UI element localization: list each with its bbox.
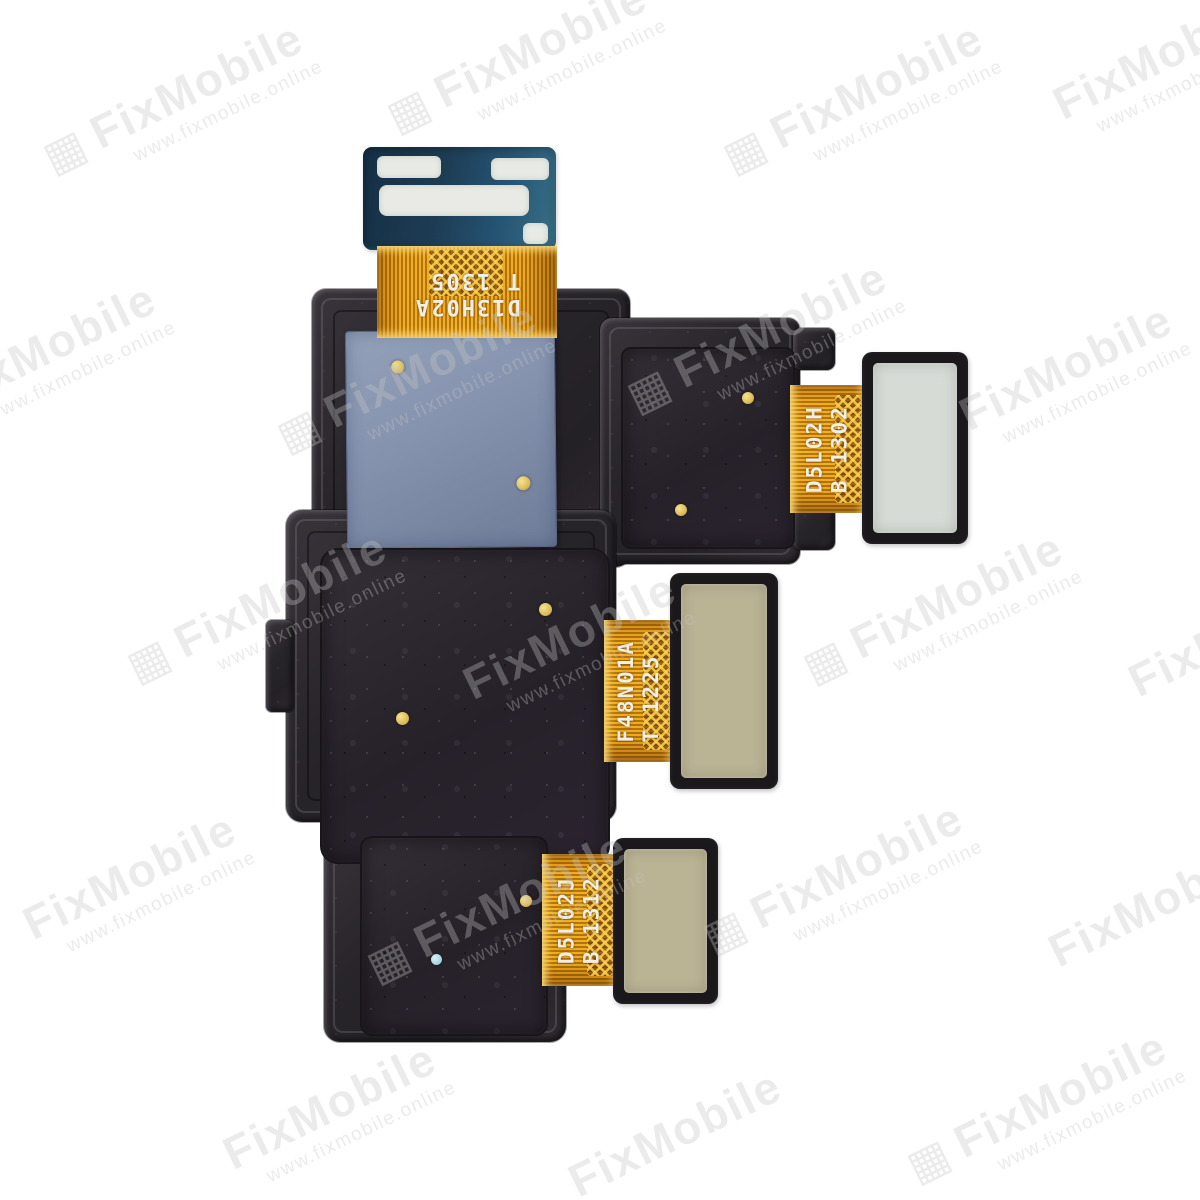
solder-dot bbox=[396, 712, 409, 725]
watermark-brand: FixMobile bbox=[1042, 832, 1200, 974]
watermark-url: www.fixmobile.online bbox=[1093, 27, 1200, 138]
connector-pad bbox=[379, 185, 529, 216]
watermark-url: www.fixmobile.online bbox=[130, 56, 327, 167]
solder-dot bbox=[539, 603, 552, 616]
watermark-brand: FixMobile bbox=[216, 1032, 449, 1177]
product-photo: D13H02AT 1305 D5L02HB 1302 F48N01AT 1225… bbox=[0, 0, 1200, 1200]
solder-dot bbox=[742, 392, 754, 404]
watermark: FixMobilewww.fixmobile.online bbox=[16, 802, 260, 970]
qr-logo-icon: ▦ bbox=[37, 123, 94, 181]
qr-logo-icon: ▦ bbox=[901, 1133, 958, 1191]
flex-connector-upper-right bbox=[862, 352, 968, 544]
barcode-pattern bbox=[169, 153, 176, 168]
flex-connector-middle-right bbox=[670, 573, 778, 789]
main-camera-module bbox=[320, 548, 610, 864]
watermark: ▦FixMobilewww.fixmobile.online bbox=[379, 0, 671, 162]
watermark-brand: FixMobile bbox=[83, 11, 316, 156]
watermark: ▦FixMobilewww.fixmobile.online bbox=[695, 791, 995, 999]
watermark: FixMobilewww.fixmobile.online bbox=[1046, 0, 1200, 150]
qr-logo-icon: ▦ bbox=[381, 83, 438, 141]
flex-cable-upper-right: D5L02HB 1302 bbox=[790, 385, 866, 513]
qr-logo-icon: ▦ bbox=[797, 633, 854, 691]
watermark-url: www.fixmobile.online bbox=[994, 1065, 1191, 1176]
flex-connector-bottom bbox=[613, 838, 718, 1004]
watermark: FixMobile bbox=[1122, 562, 1200, 704]
solder-dot bbox=[391, 360, 404, 373]
watermark: ▦FixMobilewww.fixmobile.online bbox=[715, 11, 1015, 219]
flex-marking-upper-right: D5L02HB 1302 bbox=[790, 385, 866, 513]
barcode-pattern bbox=[929, 663, 936, 678]
watermark-url: www.fixmobile.online bbox=[263, 1077, 460, 1188]
flex-marking-text: D5L02HB 1302 bbox=[803, 405, 853, 493]
watermark-url: www.fixmobile.online bbox=[63, 847, 260, 958]
connector-pad bbox=[491, 158, 549, 180]
watermark-url: www.fixmobile.online bbox=[999, 338, 1196, 449]
watermark: FixMobilewww.fixmobile.online bbox=[0, 272, 180, 440]
solder-dot bbox=[520, 895, 532, 907]
flex-cable-top: D13H02AT 1305 bbox=[377, 246, 557, 338]
watermark-url: www.fixmobile.online bbox=[790, 836, 987, 947]
watermark-brand: FixMobile bbox=[952, 293, 1185, 438]
qr-logo-icon: ▦ bbox=[717, 123, 774, 181]
watermark-brand: FixMobile bbox=[1122, 562, 1200, 704]
watermark-brand: FixMobile bbox=[1046, 0, 1200, 127]
watermark-url: www.fixmobile.online bbox=[890, 566, 1087, 677]
watermark: FixMobilewww.fixmobile.online bbox=[216, 1032, 460, 1200]
watermark-brand: FixMobile bbox=[0, 272, 169, 417]
housing-tab bbox=[793, 328, 835, 370]
connector-pad bbox=[873, 363, 957, 533]
solder-dot bbox=[516, 476, 530, 490]
camera-module-bottom bbox=[360, 836, 548, 1036]
watermark-url: www.fixmobile.online bbox=[474, 15, 671, 126]
watermark-brand: FixMobile bbox=[743, 791, 976, 936]
barcode-pattern bbox=[1038, 435, 1045, 450]
connector-pad bbox=[523, 223, 548, 244]
watermark-brand: FixMobile bbox=[427, 0, 660, 115]
watermark: FixMobile bbox=[1042, 832, 1200, 974]
connector-pad bbox=[377, 156, 441, 178]
flex-marking-text: F48N01AT 1225 bbox=[614, 640, 664, 743]
watermark-brand: FixMobile bbox=[763, 11, 996, 156]
barcode-pattern bbox=[849, 153, 856, 168]
watermark-brand: FixMobile bbox=[562, 1062, 789, 1200]
connector-pad bbox=[681, 584, 767, 778]
connector-pad bbox=[624, 849, 707, 993]
flex-marking-middle-right: F48N01AT 1225 bbox=[604, 620, 674, 762]
flex-cable-middle-right: F48N01AT 1225 bbox=[604, 620, 674, 762]
watermark: ▦FixMobilewww.fixmobile.online bbox=[35, 11, 335, 219]
flex-marking-bottom: D5L02JB 1312 bbox=[542, 854, 618, 986]
watermark-brand: FixMobile bbox=[947, 1020, 1180, 1165]
qr-logo-icon: ▦ bbox=[121, 633, 178, 691]
barcode-pattern bbox=[829, 933, 836, 948]
housing-tab bbox=[266, 620, 294, 712]
flex-marking-text: D5L02JB 1312 bbox=[555, 876, 605, 964]
indicator-dot bbox=[431, 954, 442, 965]
solder-dot bbox=[675, 504, 687, 516]
watermark: FixMobile bbox=[562, 1062, 789, 1200]
watermark: ▦FixMobilewww.fixmobile.online bbox=[899, 1020, 1191, 1200]
watermark: FixMobilewww.fixmobile.online bbox=[952, 293, 1200, 478]
flex-cable-bottom: D5L02JB 1312 bbox=[542, 854, 618, 986]
watermark-url: www.fixmobile.online bbox=[0, 317, 180, 428]
watermark-brand: FixMobile bbox=[16, 802, 249, 947]
flex-marking-text: D13H02AT 1305 bbox=[414, 266, 521, 319]
watermark-url: www.fixmobile.online bbox=[810, 56, 1007, 167]
flex-marking-top: D13H02AT 1305 bbox=[377, 246, 557, 338]
camera-module-upper-right bbox=[621, 347, 795, 549]
camera-sensor-film-sticker bbox=[345, 329, 557, 549]
board-connector-pcb bbox=[363, 147, 556, 250]
watermark: ▦FixMobilewww.fixmobile.online bbox=[795, 521, 1095, 729]
